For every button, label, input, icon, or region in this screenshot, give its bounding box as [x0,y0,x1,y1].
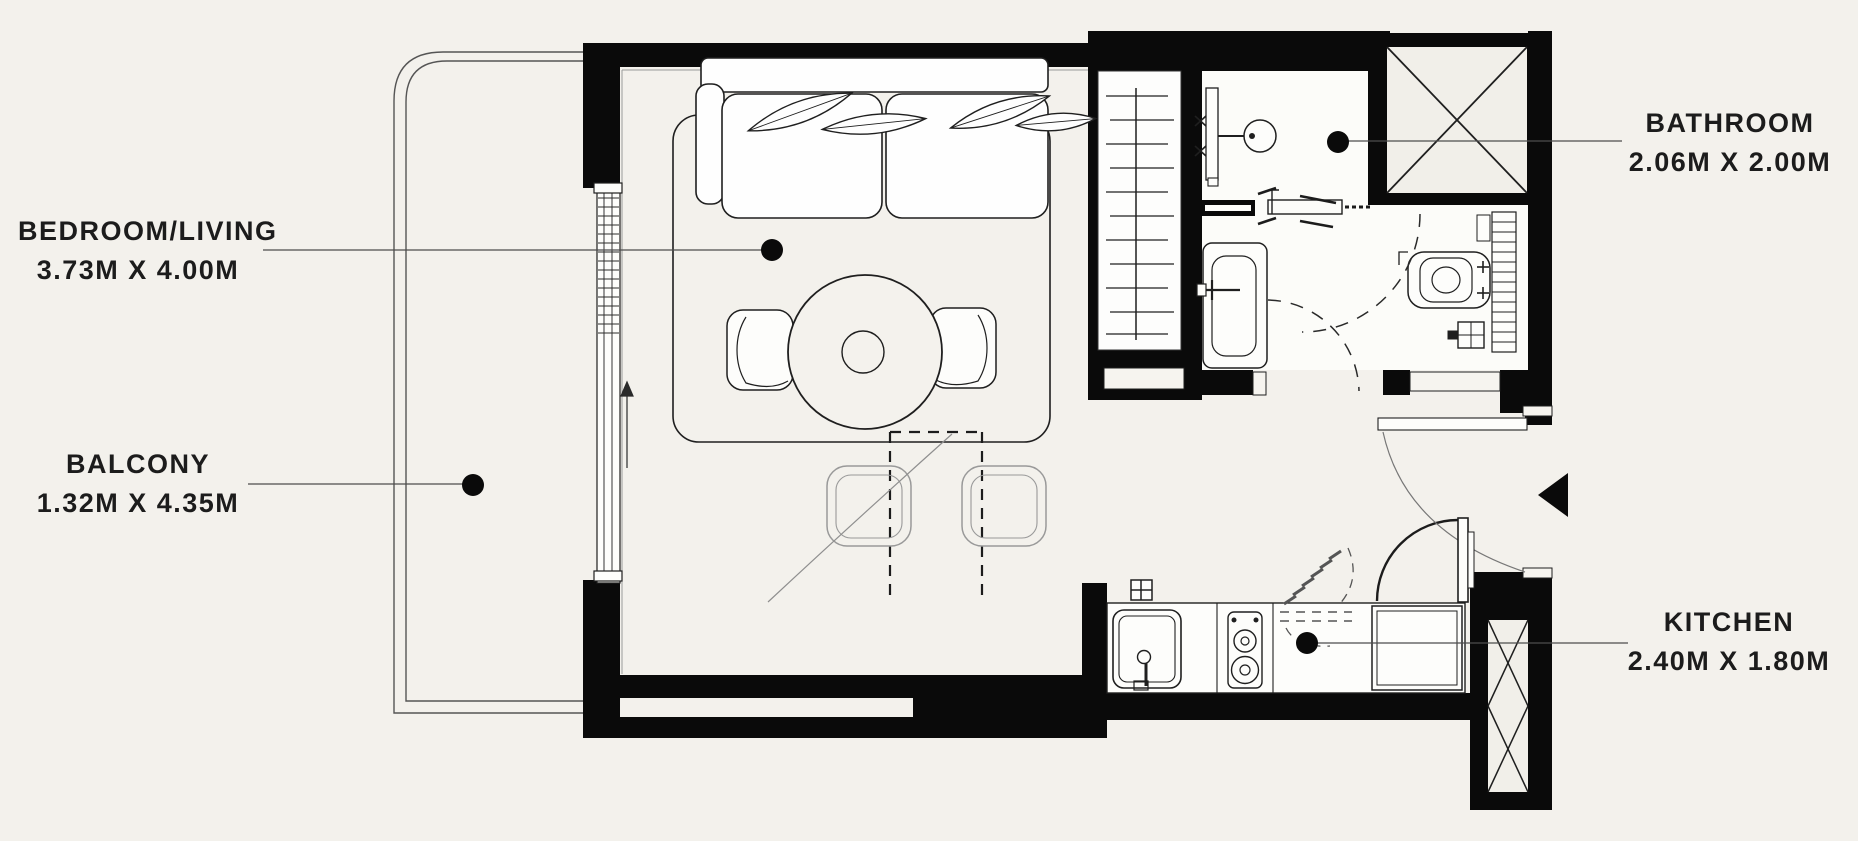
fold-table-dashed [890,432,982,600]
bathroom-name: BATHROOM [1610,104,1850,143]
window-direction-arrow [621,382,633,468]
kitchen-dimensions: 2.40M X 1.80M [1609,642,1849,681]
balcony-dot [462,474,484,496]
kitchen-window-symbol [1131,580,1152,600]
floor-plan: BEDROOM/LIVING 3.73M X 4.00M BALCONY 1.3… [0,0,1858,841]
label-bedroom-living: BEDROOM/LIVING 3.73M X 4.00M [18,212,258,290]
toilet [1399,252,1490,308]
extra-chairs [827,466,1046,546]
floor-plan-drawing [0,0,1858,841]
dining-table [788,275,942,429]
kitchen-dot [1296,632,1318,654]
label-kitchen: KITCHEN 2.40M X 1.80M [1609,603,1849,681]
entry-arrow-marker [1538,473,1568,517]
bedroom-living-dimensions: 3.73M X 4.00M [18,251,258,290]
bathroom-dot [1327,131,1349,153]
bedroom-living-dot [761,239,783,261]
vanity-sink [1197,243,1267,368]
bedroom-living-name: BEDROOM/LIVING [18,212,258,251]
balcony-outline [394,52,583,713]
kitchen-fridge [1372,606,1462,690]
balcony-dimensions: 1.32M X 4.35M [18,484,258,523]
balcony-name: BALCONY [18,445,258,484]
label-balcony: BALCONY 1.32M X 4.35M [18,445,258,523]
label-bathroom: BATHROOM 2.06M X 2.00M [1610,104,1850,182]
kitchen-name: KITCHEN [1609,603,1849,642]
elevator-shaft [1373,33,1552,205]
bathroom-dimensions: 2.06M X 2.00M [1610,143,1850,182]
room-swing-arc [768,434,952,602]
balcony-window [594,183,622,583]
sofa-bed [696,58,1048,218]
service-shaft [1488,620,1528,792]
dining-chair-left [727,310,793,390]
